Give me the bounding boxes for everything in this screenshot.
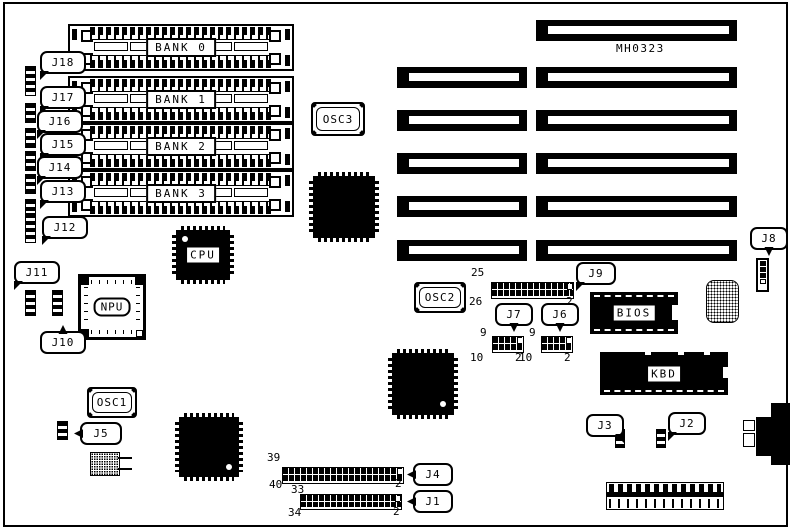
cpu-label: CPU [187, 248, 219, 263]
qfp-chip-1 [309, 172, 379, 242]
chip-notch [723, 367, 728, 378]
bank-slat [234, 141, 268, 150]
j16-header [25, 128, 36, 148]
osc-corner [414, 282, 420, 288]
socket-ticks [91, 330, 133, 334]
bank-slat [234, 42, 268, 51]
bios-label: BIOS [614, 306, 655, 321]
callout-j15-label: J15 [52, 138, 75, 151]
isa-slot-short-5 [397, 240, 527, 261]
motherboard-diagram: BANK 0 BANK 1 BANK 2 [0, 0, 791, 530]
j8-pin-header [756, 258, 769, 292]
j10-header [52, 290, 63, 316]
bank-slat [94, 42, 128, 51]
j11-header [25, 290, 36, 316]
callout-j16: J16 [37, 110, 83, 133]
socket-ticks [136, 287, 140, 327]
j1-pin2-label: 2 [393, 506, 400, 517]
j9-pin26-label: 26 [469, 296, 482, 307]
j2-header [656, 429, 666, 448]
isa-slot-long-2 [536, 67, 737, 88]
bank-end-tab [285, 107, 290, 118]
j4-pin40-label: 40 [269, 479, 282, 490]
callout-j17-label: J17 [52, 91, 75, 104]
bank-socket-clip [269, 129, 281, 141]
isa-slot-short-3 [397, 153, 527, 174]
j14-header [25, 174, 36, 194]
callout-j7: J7 [495, 303, 533, 326]
callout-j2-label: J2 [679, 417, 694, 430]
lead-line [118, 468, 132, 470]
bank-0: BANK 0 [68, 24, 294, 71]
pin1-dot [182, 236, 188, 242]
callout-j12: J12 [42, 216, 88, 239]
callout-j11: J11 [14, 261, 60, 284]
power-connector [606, 482, 724, 510]
slot-key [409, 202, 519, 210]
kbd-label: KBD [648, 366, 680, 381]
dip-socket-edge [594, 295, 674, 297]
callout-j11-label: J11 [26, 266, 49, 279]
header-row [283, 468, 403, 474]
callout-j3: J3 [586, 414, 624, 437]
callout-j14-label: J14 [49, 161, 72, 174]
chip-body [313, 176, 375, 238]
header-row [283, 475, 403, 481]
callout-j9-label: J9 [588, 267, 603, 280]
connector-tab [743, 420, 755, 431]
slot-key [548, 73, 729, 81]
osc3-label: OSC3 [316, 107, 360, 131]
cpu-chip: CPU [172, 226, 234, 284]
isa-slot-long-4 [536, 153, 737, 174]
header-pin1 [566, 338, 571, 344]
callout-j18: J18 [40, 51, 86, 74]
bank-socket-clip [269, 82, 281, 94]
bank-2-label: BANK 2 [146, 137, 216, 156]
header-pin1 [567, 284, 572, 290]
qfp-chip-3 [175, 413, 243, 481]
osc1: OSC1 [87, 387, 137, 418]
j9-pin25-label: 25 [471, 267, 484, 278]
bank-socket-clip [269, 199, 281, 211]
header-pin [760, 261, 766, 266]
osc1-label: OSC1 [92, 392, 132, 413]
j12-header [25, 213, 36, 243]
osc-corner [131, 387, 137, 393]
j4-pin39-label: 39 [267, 452, 280, 463]
bank-slat [94, 141, 128, 150]
callout-j18-label: J18 [52, 56, 75, 69]
callout-j9: J9 [576, 262, 616, 285]
j5-header [57, 421, 68, 440]
qfp-chip-2 [388, 349, 458, 419]
osc-corner [414, 307, 420, 313]
bank-end-tab [285, 128, 290, 139]
callout-j12-label: J12 [54, 221, 77, 234]
header-pin1 [397, 469, 402, 475]
osc-corner [87, 412, 93, 418]
crystal-footprint [90, 452, 120, 476]
j1-pin-header [300, 494, 402, 510]
socket-ticks [84, 287, 88, 327]
bank-socket-clip [269, 152, 281, 164]
osc-corner [359, 102, 365, 108]
callout-j16-label: J16 [49, 115, 72, 128]
callout-j10: J10 [40, 331, 86, 354]
j1-pin34-label: 34 [288, 507, 301, 518]
j9-pin-header [491, 282, 574, 299]
header-pin1 [395, 496, 400, 502]
bank-end-tab [72, 29, 77, 40]
callout-j14: J14 [37, 156, 83, 179]
bank-end-tab [285, 29, 290, 40]
header-row [492, 290, 573, 296]
osc2: OSC2 [414, 282, 466, 313]
chip-notch [672, 305, 678, 320]
j7-pin9-label: 9 [480, 327, 487, 338]
j6-pin2-label: 2 [564, 352, 571, 363]
callout-j8-label: J8 [761, 232, 776, 245]
bank-1-label: BANK 1 [146, 90, 216, 109]
power-pins [609, 484, 721, 492]
slot-key [548, 116, 729, 124]
j1-pin33-label: 33 [291, 484, 304, 495]
callout-j3-label: J3 [597, 419, 612, 432]
j6-pin9-label: 9 [529, 327, 536, 338]
bios-chip: BIOS [590, 292, 678, 334]
bank-2: BANK 2 [68, 123, 294, 170]
bank-socket-clip [269, 53, 281, 65]
power-pin-boxes [609, 499, 721, 508]
osc-corner [460, 282, 466, 288]
header-pin1 [517, 338, 522, 344]
osc-corner [87, 387, 93, 393]
din-connector-footprint [707, 281, 738, 322]
socket-corner [81, 277, 89, 285]
npu-label: NPU [94, 298, 131, 317]
lead-line [118, 457, 132, 459]
osc2-label: OSC2 [419, 287, 461, 308]
bank-slat [234, 94, 268, 103]
callout-j1-label: J1 [425, 495, 440, 508]
slot-key [409, 246, 519, 254]
socket-ticks [91, 280, 133, 284]
bank-socket-clip [269, 30, 281, 42]
header-row [542, 344, 572, 350]
isa-slot-long-6 [536, 240, 737, 261]
j7-pin10-label: 10 [470, 352, 483, 363]
callout-j2: J2 [668, 412, 706, 435]
slot-key [409, 73, 519, 81]
callout-j4: J4 [413, 463, 453, 486]
j4-pin2-label: 2 [395, 478, 402, 489]
j4-pin-header [282, 467, 404, 484]
header-row [493, 344, 523, 350]
bank-end-tab [285, 201, 290, 212]
isa-slot-short-1 [397, 67, 527, 88]
bank-end-tab [285, 175, 290, 186]
npu-socket: NPU [78, 274, 146, 340]
slot-key [548, 26, 729, 34]
pin1-dot [226, 464, 232, 470]
callout-j6-label: J6 [552, 308, 567, 321]
header-row [301, 495, 401, 501]
bank-1: BANK 1 [68, 76, 294, 123]
bank-end-tab [285, 81, 290, 92]
isa-slot-short-4 [397, 196, 527, 217]
callout-j13-label: J13 [52, 185, 75, 198]
osc-corner [311, 130, 317, 136]
callout-j10-label: J10 [52, 336, 75, 349]
j17-header [25, 103, 36, 123]
callout-j1: J1 [413, 490, 453, 513]
slot-key [548, 159, 729, 167]
osc3: OSC3 [311, 102, 365, 136]
callout-j13: J13 [40, 180, 86, 203]
bank-socket-clip [269, 176, 281, 188]
socket-corner [135, 277, 143, 285]
slot-key [409, 116, 519, 124]
chip-tick [678, 352, 684, 355]
slot-key [409, 159, 519, 167]
bank-end-tab [285, 154, 290, 165]
callout-j4-label: J4 [425, 468, 440, 481]
j15-header [25, 151, 36, 171]
j6-pin10-label: 10 [519, 352, 532, 363]
osc-corner [311, 102, 317, 108]
power-body [607, 492, 723, 497]
isa-slot-short-2 [397, 110, 527, 131]
callout-j17: J17 [40, 86, 86, 109]
header-row [301, 502, 401, 507]
keyboard-connector [756, 417, 790, 456]
bank-3-label: BANK 3 [146, 184, 216, 203]
kbd-controller-chip: KBD [600, 352, 728, 395]
isa-slot-long-5 [536, 196, 737, 217]
bank-socket-clip [269, 105, 281, 117]
callout-j15: J15 [40, 133, 86, 156]
callout-j7-label: J7 [506, 308, 521, 321]
chip-tick [704, 352, 710, 355]
slot-key [548, 202, 729, 210]
j18-header [25, 66, 36, 96]
bank-slat [94, 94, 128, 103]
callout-j8: J8 [750, 227, 788, 250]
connector-tab [743, 433, 755, 447]
bank-0-label: BANK 0 [146, 38, 216, 57]
header-pin [760, 273, 766, 278]
header-pin1 [760, 279, 766, 284]
header-row [492, 283, 573, 289]
dip-socket-edge [604, 390, 724, 392]
bank-3: BANK 3 [68, 170, 294, 217]
callout-j5-label: J5 [93, 427, 108, 440]
bank-slat [234, 188, 268, 197]
bank-end-tab [285, 55, 290, 66]
callout-j5: J5 [80, 422, 122, 445]
dip-socket-edge [594, 329, 674, 331]
header-pin [760, 267, 766, 272]
isa-slot-long-3 [536, 110, 737, 131]
slot-key [548, 246, 729, 254]
pin1-dot [440, 401, 446, 407]
chip-tick [645, 352, 651, 355]
isa-slot-long-1 [536, 20, 737, 41]
board-marking: MH0323 [616, 42, 665, 55]
callout-j6: J6 [541, 303, 579, 326]
bank-slat [94, 188, 128, 197]
socket-pin1-notch [136, 330, 143, 337]
